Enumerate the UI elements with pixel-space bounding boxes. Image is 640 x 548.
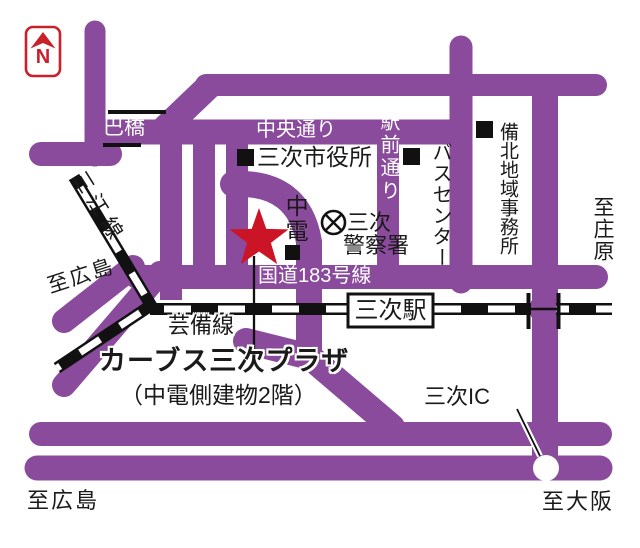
tomoe-bridge-label: 巴橋 — [103, 117, 145, 139]
bus-center-label: バスセンター — [429, 142, 450, 268]
miyoshi-station-label: 三次駅 — [354, 298, 427, 323]
destination-note-label: （中電側建物2階） — [120, 383, 317, 407]
destination-name-label: カーブス三次プラザ — [99, 347, 349, 375]
north-label: N — [34, 47, 52, 68]
city-hall-square-icon — [237, 149, 254, 166]
city-hall-label: 三次市役所 — [257, 145, 372, 169]
bihoku-office-label: 備北地域事務所 — [497, 122, 517, 255]
police-station-label-line1: 三次 — [347, 211, 391, 234]
chuo-dori-label: 中央通り — [256, 120, 336, 141]
police-station-label-line2: 警察署 — [343, 234, 409, 257]
to-hiroshima-south-label: 至広島 — [27, 489, 99, 512]
miyoshi-ic-label: 三次IC — [424, 385, 490, 408]
chuden-square-icon — [285, 245, 300, 260]
to-shobara-label: 至庄原 — [591, 196, 613, 262]
to-osaka-label: 至大阪 — [542, 490, 614, 513]
ekimae-dori-label: 駅前通り — [377, 111, 398, 203]
geibi-line-label: 芸備線 — [168, 314, 234, 337]
bihoku-office-square-icon — [476, 121, 493, 138]
interchange-circle-icon — [533, 455, 559, 481]
chuden-label: 中電 — [283, 194, 307, 244]
bus-center-square-icon — [403, 148, 420, 165]
police-station-icon — [322, 211, 345, 234]
route183-label: 国道183号線 — [258, 266, 371, 287]
access-map: N 巴橋 中央通り 三次市役所 駅前通り バスセンター 備北地域事務所 至庄原 … — [0, 0, 640, 548]
